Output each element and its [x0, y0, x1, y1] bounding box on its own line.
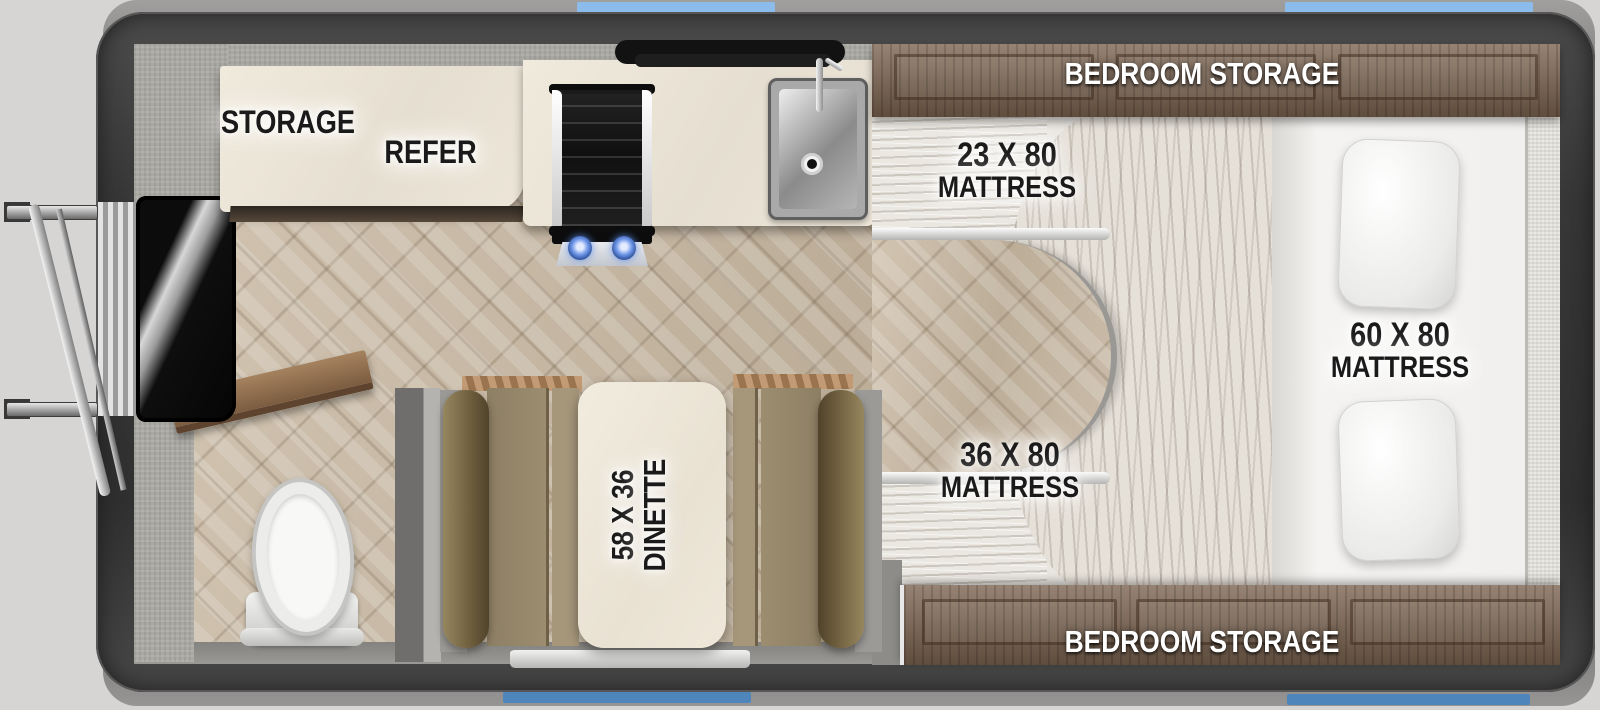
mattress-60-label: 60 X 80 MATTRESS — [1307, 318, 1494, 384]
cooktop-grate — [562, 94, 642, 226]
dinette-bolster-right — [818, 390, 864, 648]
dinette-bench-woodtop-right — [733, 374, 853, 389]
bedroom-wall-right — [1525, 112, 1560, 598]
mattress-36-label-line2: MATTRESS — [934, 472, 1087, 504]
bunk-rail-top — [872, 228, 1110, 240]
bathroom-partition-wall — [395, 388, 441, 662]
front-corner-wall — [134, 44, 228, 218]
pillow — [1337, 398, 1461, 562]
entry-doorway — [98, 202, 136, 416]
refer-label: REFER — [377, 136, 483, 168]
mattress-23-label-line2: MATTRESS — [931, 172, 1084, 204]
mattress-60-label-line2: MATTRESS — [1307, 352, 1494, 384]
dinette-platform — [510, 648, 750, 668]
mattress-23-label: 23 X 80 MATTRESS — [931, 138, 1084, 204]
dinette-bench-right — [761, 388, 821, 646]
dinette-bolster-left — [443, 390, 489, 648]
storage-label: STORAGE — [216, 106, 361, 138]
cooktop-rail-left — [552, 90, 562, 230]
mattress-36-label-line1: 36 X 80 — [934, 438, 1087, 472]
window-bottom-right — [1287, 694, 1530, 705]
refrigerator-under-counter — [229, 206, 523, 222]
entry-step-top — [6, 205, 98, 220]
cooktop — [552, 90, 652, 230]
cooktop-rail-right — [642, 90, 652, 230]
bathroom-wall-left — [134, 415, 194, 662]
dinette-label-line1: 58 X 36 — [607, 430, 638, 600]
bedroom-storage-label-top: BEDROOM STORAGE — [998, 56, 1406, 92]
dinette-bench-left — [487, 388, 549, 646]
mattress-23-label-line1: 23 X 80 — [931, 138, 1084, 172]
sink-drain — [801, 153, 823, 175]
range-hood-inner — [635, 54, 831, 67]
burner-icon — [612, 236, 636, 260]
bedroom-storage-label-bottom: BEDROOM STORAGE — [998, 624, 1406, 660]
floorplan: STORAGE REFER BEDROOM STORAGE BEDROOM ST… — [0, 0, 1600, 710]
pillow — [1337, 138, 1461, 310]
window-bottom-left — [503, 692, 751, 703]
dinette-label: 58 X 36 DINETTE — [607, 430, 697, 600]
dinette-label-line2: DINETTE — [638, 430, 671, 600]
entry-door — [136, 196, 236, 422]
dinette-bench-right-cushion — [733, 388, 758, 646]
burner-icon — [568, 236, 592, 260]
faucet — [816, 58, 823, 112]
dinette-bench-left-cushion — [552, 388, 579, 646]
mattress-36-label: 36 X 80 MATTRESS — [934, 438, 1087, 504]
mattress-60-label-line1: 60 X 80 — [1307, 318, 1494, 352]
